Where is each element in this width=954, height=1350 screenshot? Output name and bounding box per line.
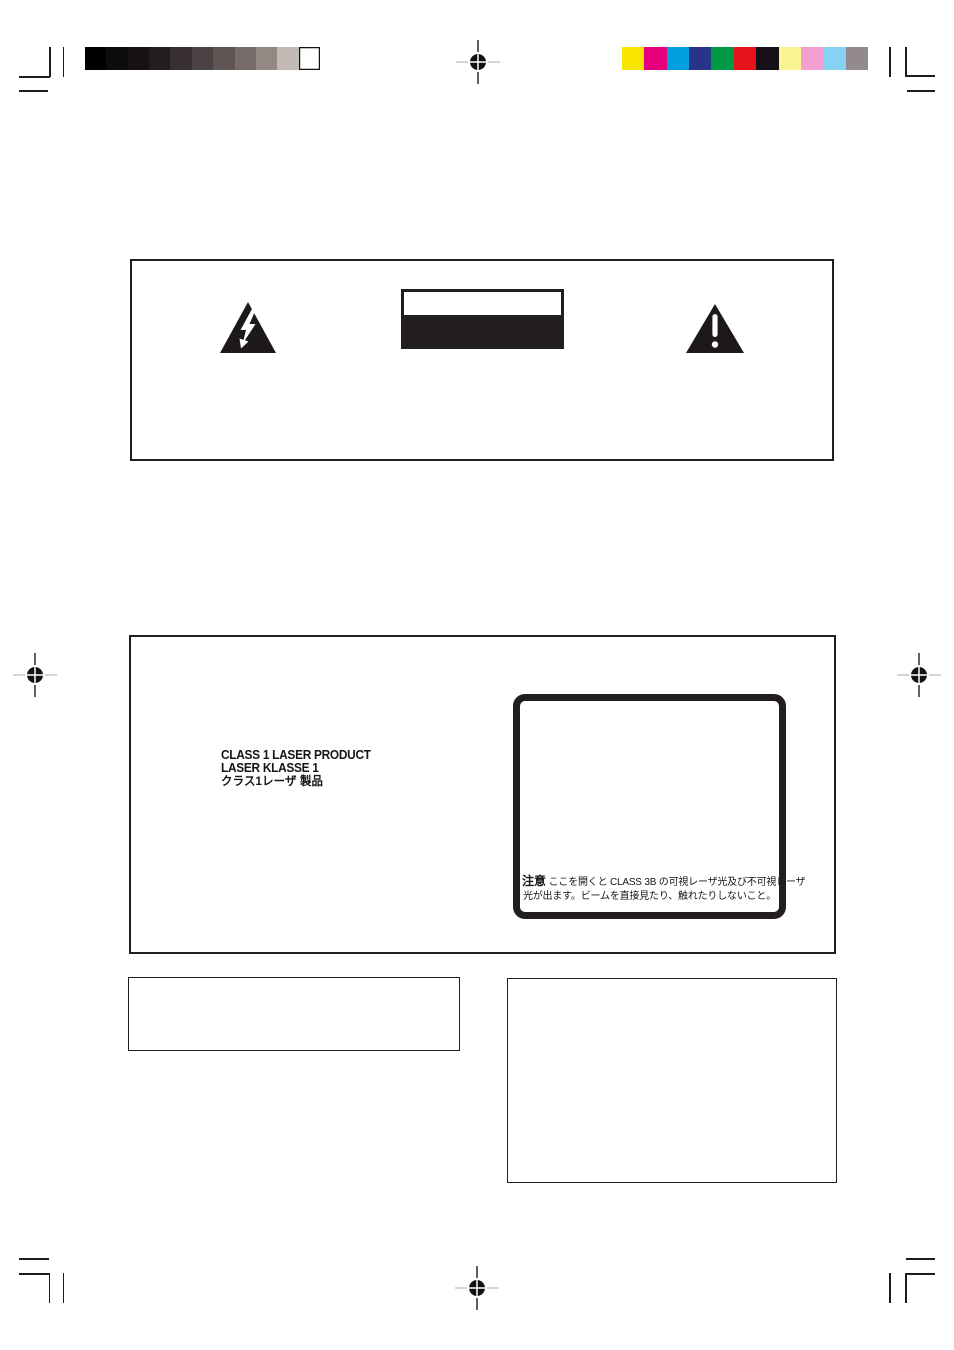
laser-warning-sticker: 注意 ここを開くと CLASS 3B の可視レーザ光及び不可視レーザ 光が出ます… xyxy=(513,694,786,919)
crop-mark-bottom-left-v xyxy=(49,1273,51,1303)
grayscale-patch xyxy=(128,47,149,70)
color-patch xyxy=(801,47,823,70)
grayscale-patch xyxy=(235,47,256,70)
caution-line1-text: ここを開くと CLASS 3B の可視レーザ光及び不可視レーザ xyxy=(549,877,806,888)
crop-mark-bottom-right-h xyxy=(905,1273,935,1275)
caution-heading: 注意 xyxy=(522,874,546,888)
grayscale-patch xyxy=(256,47,277,70)
registration-target-icon xyxy=(453,1264,501,1312)
crop-mark-top-right-h xyxy=(905,75,935,77)
laser-class-line-de: LASER KLASSE 1 xyxy=(221,762,371,775)
laser-class-line-en: CLASS 1 LASER PRODUCT xyxy=(221,749,371,762)
warning-symbols-panel xyxy=(130,259,834,461)
crop-mark-bottom-left-h2 xyxy=(19,1258,49,1260)
registration-target-icon xyxy=(895,651,943,699)
laser-class-line-jp: クラス1レーザ 製品 xyxy=(221,775,371,788)
scanned-manual-page: CLASS 1 LASER PRODUCT LASER KLASSE 1 クラス… xyxy=(0,0,954,1350)
crop-mark-top-right-v xyxy=(905,47,907,77)
crop-mark-top-left-h2 xyxy=(19,90,48,92)
color-patch xyxy=(846,47,868,70)
crop-mark-bottom-left-h xyxy=(19,1273,50,1275)
color-patch xyxy=(667,47,689,70)
color-patch xyxy=(779,47,801,70)
crop-mark-bottom-right-h2 xyxy=(906,1258,935,1260)
crop-mark-bottom-left-v2 xyxy=(63,1273,65,1303)
crop-mark-bottom-right-v xyxy=(905,1273,907,1303)
grayscale-calibration-bar xyxy=(85,47,320,70)
color-patch xyxy=(644,47,666,70)
color-patch xyxy=(823,47,845,70)
caution-label-top-band xyxy=(404,292,561,315)
registration-target-icon xyxy=(11,651,59,699)
blank-caution-label xyxy=(401,289,564,349)
laser-class-label: CLASS 1 LASER PRODUCT LASER KLASSE 1 クラス… xyxy=(221,749,371,787)
registration-target-icon xyxy=(454,38,502,86)
grayscale-patch xyxy=(299,47,320,70)
laser-warning-line1: 注意 ここを開くと CLASS 3B の可視レーザ光及び不可視レーザ xyxy=(522,875,777,890)
color-patch xyxy=(756,47,778,70)
grayscale-patch xyxy=(277,47,298,70)
grayscale-patch xyxy=(213,47,234,70)
crop-mark-top-left-v2 xyxy=(63,47,65,77)
grayscale-patch xyxy=(85,47,106,70)
laser-warning-text: 注意 ここを開くと CLASS 3B の可視レーザ光及び不可視レーザ 光が出ます… xyxy=(522,875,777,903)
crop-mark-top-left-v xyxy=(49,47,51,77)
color-patch xyxy=(711,47,733,70)
color-patch xyxy=(622,47,644,70)
color-patch xyxy=(689,47,711,70)
grayscale-patch xyxy=(149,47,170,70)
crop-mark-bottom-right-v2 xyxy=(889,1273,891,1303)
color-patch xyxy=(734,47,756,70)
empty-note-box-right xyxy=(507,978,837,1183)
grayscale-patch xyxy=(192,47,213,70)
crop-mark-top-right-v2 xyxy=(889,47,891,77)
empty-note-box-left xyxy=(128,977,460,1051)
grayscale-patch xyxy=(106,47,127,70)
grayscale-patch xyxy=(170,47,191,70)
crop-mark-top-left-h xyxy=(19,76,50,78)
crop-mark-top-right-h2 xyxy=(907,90,935,92)
color-calibration-bar xyxy=(622,47,868,70)
laser-classification-panel: CLASS 1 LASER PRODUCT LASER KLASSE 1 クラス… xyxy=(129,635,836,954)
laser-warning-line2: 光が出ます。ビームを直接見たり、触れたりしないこと。 xyxy=(522,890,777,904)
lightning-bolt-triangle-icon xyxy=(218,300,278,355)
exclamation-triangle-icon xyxy=(684,302,746,355)
